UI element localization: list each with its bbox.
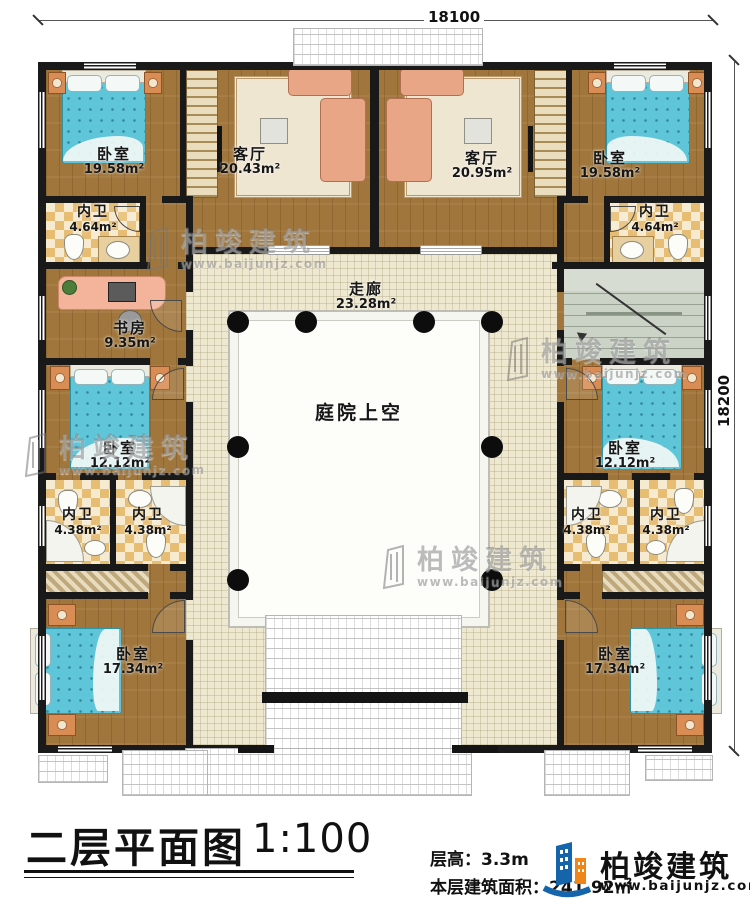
sink: [620, 241, 644, 259]
wall: [557, 196, 564, 259]
dimension-line-top: [38, 20, 714, 21]
window: [704, 296, 712, 340]
watermark-site: www.baijunjz.com: [541, 366, 688, 383]
column: [227, 569, 249, 591]
room-name: 内卫: [600, 205, 710, 221]
room-area: 23.28m²: [311, 298, 421, 313]
window: [38, 296, 46, 340]
wall: [694, 473, 712, 480]
roof: [185, 748, 472, 796]
room-area: 19.58m²: [59, 163, 169, 178]
wall: [482, 247, 557, 254]
room-label-bedroom-br: 卧室 17.34m²: [560, 646, 670, 677]
dimension-top-value: 18100: [424, 8, 484, 26]
room-name: 内卫: [93, 508, 203, 524]
window: [614, 62, 666, 70]
room-name: 走廊: [311, 281, 421, 298]
wall: [186, 330, 193, 366]
room-label-courtyard: 庭院上空: [289, 403, 429, 424]
sofa: [320, 98, 366, 182]
floor-height-text: 层高：3.3m: [430, 845, 529, 870]
room-area: 4.38m²: [611, 524, 721, 537]
column: [227, 436, 249, 458]
wall: [238, 745, 274, 753]
column: [481, 436, 503, 458]
floor-plan-page: 18100 18200: [0, 0, 750, 906]
dimension-right-value: 18200: [715, 371, 733, 431]
column: [481, 311, 503, 333]
nightstand: [48, 72, 66, 94]
wall: [38, 358, 150, 365]
room-label-bedroom-bl: 卧室 17.34m²: [78, 646, 188, 677]
room-area: 4.64m²: [38, 221, 148, 234]
nightstand: [48, 604, 76, 626]
window: [38, 636, 46, 700]
room-name: 内卫: [38, 205, 148, 221]
watermark-site: www.baijunjz.com: [181, 256, 328, 273]
wall: [608, 196, 712, 203]
room-label-bedroom-tr: 卧室 19.58m²: [555, 150, 665, 181]
sink: [646, 540, 666, 555]
watermark-site: www.baijunjz.com: [59, 462, 206, 479]
room-area: 9.35m²: [75, 337, 185, 352]
room-name: 书房: [75, 320, 185, 337]
watermark-logo-icon: [500, 336, 534, 386]
plant: [62, 280, 77, 295]
wall: [38, 262, 150, 269]
column: [227, 311, 249, 333]
pillow: [74, 369, 108, 385]
dimension-line-right: [734, 62, 735, 753]
watermark-text: 柏竣建筑 www.baijunjz.com: [541, 339, 688, 383]
room-name: 卧室: [555, 150, 665, 167]
wall: [557, 252, 564, 292]
roof: [293, 28, 483, 66]
wall: [564, 592, 580, 599]
room-area: 20.43m²: [195, 163, 305, 178]
window: [704, 636, 712, 700]
plan-title: 二层平面图: [26, 814, 246, 874]
window: [704, 92, 712, 148]
nightstand: [588, 72, 606, 94]
plan-scale: 1:100: [252, 816, 372, 862]
wall: [162, 196, 186, 203]
roof: [645, 755, 713, 781]
coffee-table: [260, 118, 288, 144]
watermark-logo-icon: [140, 226, 174, 276]
room-label-bedroom-tl: 卧室 19.58m²: [59, 146, 169, 177]
stair-landing: [564, 269, 704, 291]
roof: [122, 750, 208, 796]
brand-logo-icon: [538, 838, 594, 904]
wall: [370, 62, 379, 254]
title-underline: [24, 870, 354, 873]
room-name: 卧室: [59, 146, 169, 163]
room-label-corridor: 走廊 23.28m²: [311, 281, 421, 312]
wardrobe: [602, 570, 708, 594]
room-label-living-r: 客厅 20.95m²: [427, 150, 537, 181]
roof: [544, 750, 630, 796]
watermark-logo-icon: [18, 432, 52, 482]
room-area: 19.58m²: [555, 167, 665, 182]
watermark-logo-icon: [376, 544, 410, 594]
room-area: 4.64m²: [600, 221, 710, 234]
pillow: [67, 75, 102, 92]
title-underline: [24, 877, 354, 878]
sliding-door: [420, 245, 482, 255]
room-label-bath-r2: 内卫 4.38m²: [611, 508, 721, 537]
watermark: 柏竣建筑 www.baijunjz.com: [500, 336, 688, 386]
wall: [552, 262, 712, 269]
wall: [38, 564, 148, 571]
column: [413, 311, 435, 333]
nightstand: [48, 714, 76, 736]
room-area: 17.34m²: [78, 663, 188, 678]
nightstand: [50, 366, 70, 390]
closet: [186, 70, 218, 198]
watermark-text: 柏竣建筑 www.baijunjz.com: [181, 229, 328, 273]
wall: [632, 473, 670, 480]
watermark: 柏竣建筑 www.baijunjz.com: [18, 432, 206, 482]
monitor: [108, 282, 136, 302]
room-label-bedroom-mr: 卧室 12.12m²: [570, 440, 680, 471]
room-name: 卧室: [570, 440, 680, 457]
wall: [564, 564, 580, 571]
room-name: 客厅: [195, 146, 305, 163]
nightstand: [676, 714, 704, 736]
sofa: [400, 68, 464, 96]
sink: [598, 490, 622, 508]
window: [704, 390, 712, 448]
room-name: 卧室: [78, 646, 188, 663]
wall: [564, 196, 588, 203]
room-name: 内卫: [611, 508, 721, 524]
watermark-name: 柏竣建筑: [541, 337, 677, 368]
wall: [452, 745, 498, 753]
watermark-text: 柏竣建筑 www.baijunjz.com: [59, 435, 206, 479]
room-name: 卧室: [560, 646, 670, 663]
room-area: 20.95m²: [427, 167, 537, 182]
wall: [602, 564, 712, 571]
sink: [84, 540, 106, 556]
watermark-text: 柏竣建筑 www.baijunjz.com: [417, 547, 564, 591]
wall: [170, 564, 186, 571]
window: [38, 92, 46, 148]
room-name: 客厅: [427, 150, 537, 167]
room-area: 4.38m²: [93, 524, 203, 537]
room-label-bath-l2: 内卫 4.38m²: [93, 508, 203, 537]
room-label-bath-tr: 内卫 4.64m²: [600, 205, 710, 234]
pillow: [111, 369, 145, 385]
sink: [128, 490, 152, 508]
nightstand: [688, 72, 706, 94]
window: [638, 745, 692, 753]
roof: [265, 615, 462, 750]
watermark-site: www.baijunjz.com: [417, 574, 564, 591]
room-label-bath-tl: 内卫 4.64m²: [38, 205, 148, 234]
nightstand: [144, 72, 162, 94]
sink: [106, 241, 130, 259]
watermark: 柏竣建筑 www.baijunjz.com: [140, 226, 328, 276]
wall: [178, 358, 186, 365]
watermark-name: 柏竣建筑: [181, 227, 317, 258]
room-area: 12.12m²: [570, 457, 680, 472]
window: [84, 62, 136, 70]
coffee-table: [464, 118, 492, 144]
pillow: [649, 75, 684, 92]
column: [295, 311, 317, 333]
pillow: [105, 75, 140, 92]
wardrobe: [44, 570, 150, 594]
wall: [38, 196, 142, 203]
room-name: 庭院上空: [289, 403, 429, 424]
wall: [330, 247, 420, 254]
brand-website: www.baijunjz.com: [600, 878, 750, 894]
room-area: 17.34m²: [560, 663, 670, 678]
wall: [564, 473, 608, 480]
wall: [602, 592, 712, 599]
wall: [170, 592, 186, 599]
beam: [262, 692, 468, 703]
watermark-name: 柏竣建筑: [417, 545, 553, 576]
room-label-living-l: 客厅 20.43m²: [195, 146, 305, 177]
wall: [38, 592, 148, 599]
window: [58, 745, 112, 753]
pillow: [611, 75, 646, 92]
wall: [180, 70, 186, 196]
nightstand: [676, 604, 704, 626]
sofa: [386, 98, 432, 182]
room-label-study: 书房 9.35m²: [75, 320, 185, 351]
watermark: 柏竣建筑 www.baijunjz.com: [376, 544, 564, 594]
watermark-name: 柏竣建筑: [59, 433, 195, 464]
roof: [38, 755, 108, 783]
sofa: [288, 68, 352, 96]
